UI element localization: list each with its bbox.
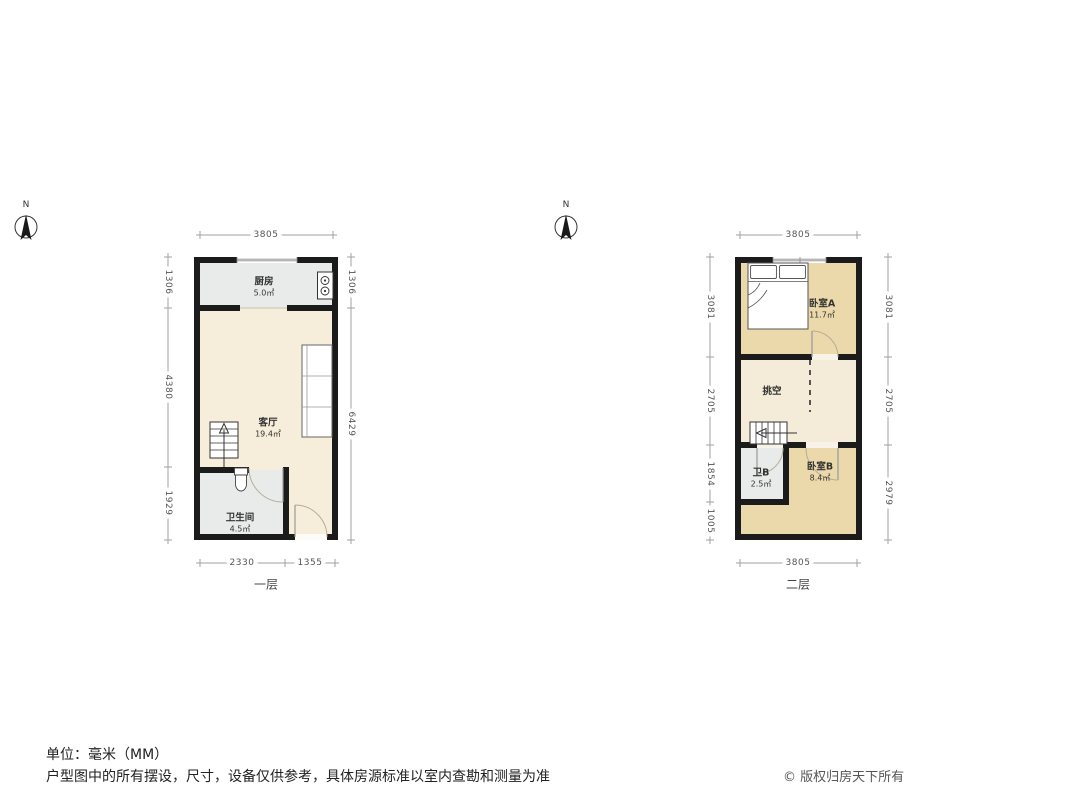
floor-label-first: 一层 xyxy=(254,576,278,593)
floor-plan-second-floor xyxy=(706,231,892,567)
dimension-label: 1306 xyxy=(346,267,356,298)
room-name: 卫生间 xyxy=(226,513,255,525)
floorplan-drawing xyxy=(0,0,1066,800)
room-area: 8.4㎡ xyxy=(807,474,833,484)
dimension-label: 2330 xyxy=(227,558,258,568)
toilet-icon xyxy=(235,468,248,491)
north-compass-icon xyxy=(15,215,37,241)
room-area: 11.7㎡ xyxy=(809,311,835,321)
dimension-label: 2979 xyxy=(883,478,893,509)
room-name: 厨房 xyxy=(254,277,275,289)
room-label-living-room: 客厅 19.4㎡ xyxy=(255,418,281,441)
room-label-bedroom-a: 卧室A 11.7㎡ xyxy=(809,299,835,322)
room-label-bathroom: 卫生间 4.5㎡ xyxy=(226,513,255,536)
dimension-label: 1854 xyxy=(705,459,715,490)
window-icon xyxy=(773,257,826,263)
room-name: 挑空 xyxy=(762,386,781,398)
room-label-bedroom-b: 卧室B 8.4㎡ xyxy=(807,462,833,485)
room-name: 卫B xyxy=(751,468,772,480)
room-area: 4.5㎡ xyxy=(226,525,255,535)
room-area: 5.0㎡ xyxy=(254,289,275,299)
room-name: 卧室B xyxy=(807,462,833,474)
dimension-label: 2705 xyxy=(883,386,893,417)
room-name: 卧室A xyxy=(809,299,835,311)
unit-note: 单位：毫米（MM） xyxy=(46,744,168,764)
room-label-kitchen: 厨房 5.0㎡ xyxy=(254,277,275,300)
compass-n-label: N xyxy=(563,200,570,210)
dimension-label: 4380 xyxy=(163,372,173,403)
disclaimer-text: 户型图中的所有摆设，尺寸，设备仅供参考，具体房源标准以室内查勘和测量为准 xyxy=(46,766,550,786)
dimension-label: 3081 xyxy=(883,292,893,323)
floor-label-second: 二层 xyxy=(786,576,810,593)
dimension-label: 3081 xyxy=(705,292,715,323)
stove-icon xyxy=(318,272,334,299)
dimension-label: 1929 xyxy=(163,488,173,519)
sofa-icon xyxy=(302,345,332,437)
window-icon xyxy=(237,257,297,263)
dimension-label: 1355 xyxy=(295,558,326,568)
dimension-label: 3805 xyxy=(783,558,814,568)
room-label-bathroom-b: 卫B 2.5㎡ xyxy=(751,468,772,491)
room-area: 19.4㎡ xyxy=(255,430,281,440)
dimension-label: 1306 xyxy=(163,267,173,298)
room-label-void: 挑空 xyxy=(762,386,781,398)
dimension-label: 2705 xyxy=(705,386,715,417)
dimension-label: 3805 xyxy=(783,230,814,240)
compass-n-label: N xyxy=(23,200,30,210)
north-compass-icon xyxy=(555,215,577,241)
room-area: 2.5㎡ xyxy=(751,480,772,490)
dimension-label: 6429 xyxy=(346,409,356,440)
copyright-text: © 版权归房天下所有 xyxy=(783,766,904,785)
floorplan-page: N N 3805 1306 4380 1929 1306 6429 2330 1… xyxy=(0,0,1066,800)
dimension-label: 1005 xyxy=(705,506,715,537)
dimension-label: 3805 xyxy=(251,230,282,240)
room-name: 客厅 xyxy=(255,418,281,430)
bed-icon xyxy=(748,263,808,329)
